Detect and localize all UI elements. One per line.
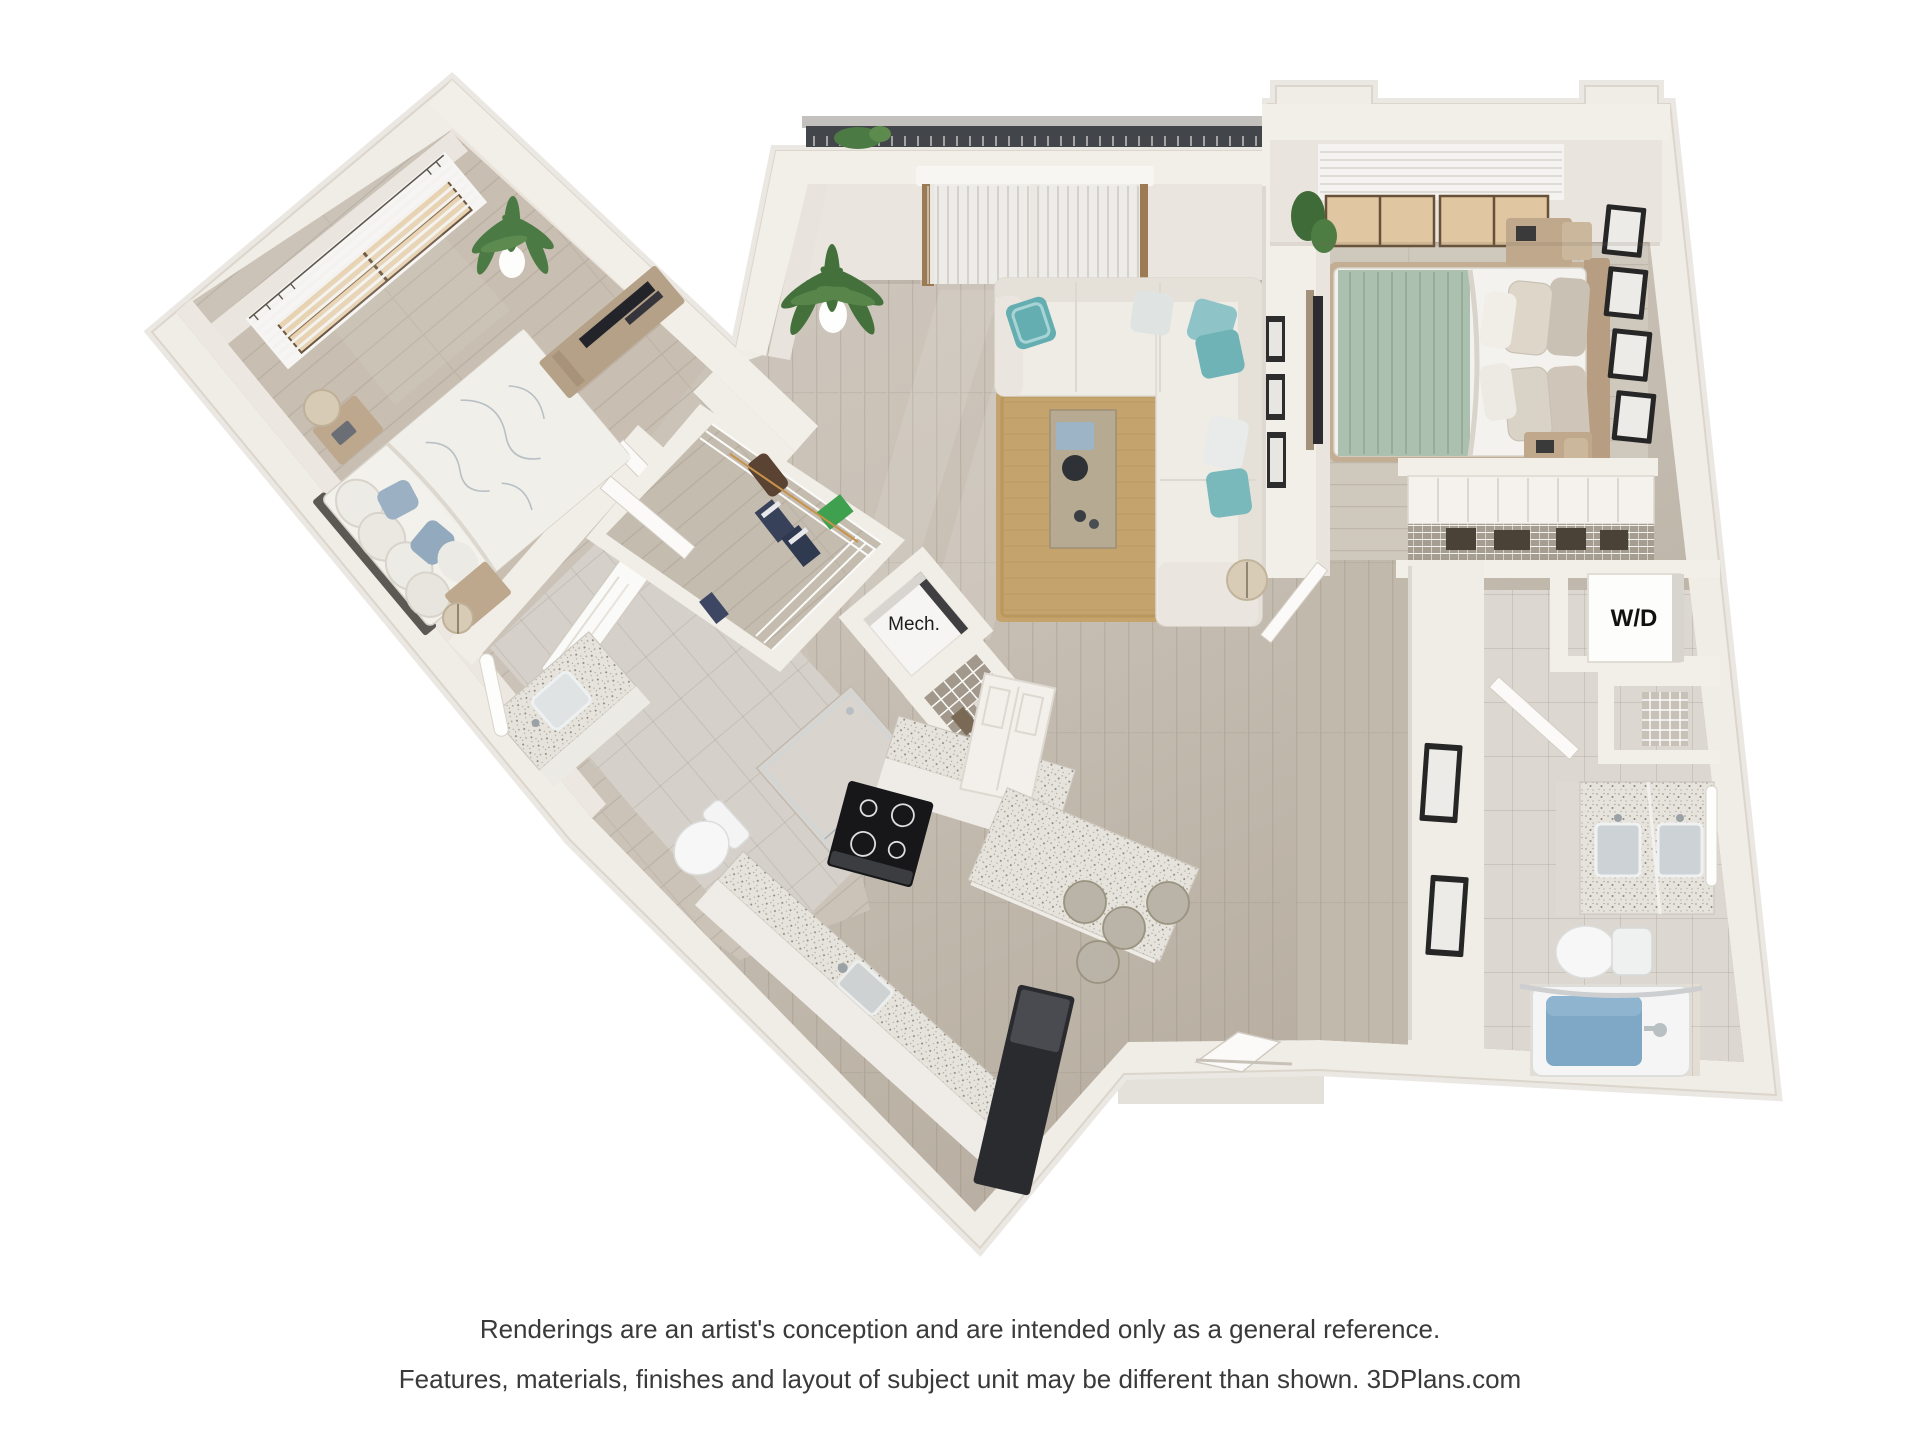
svg-text:Renderings are an artist's con: Renderings are an artist's conception an…: [480, 1314, 1440, 1344]
svg-text:Features, materials, finishes: Features, materials, finishes and layout…: [399, 1364, 1521, 1394]
svg-text:W/D: W/D: [1611, 605, 1658, 632]
svg-text:Mech.: Mech.: [888, 614, 940, 635]
